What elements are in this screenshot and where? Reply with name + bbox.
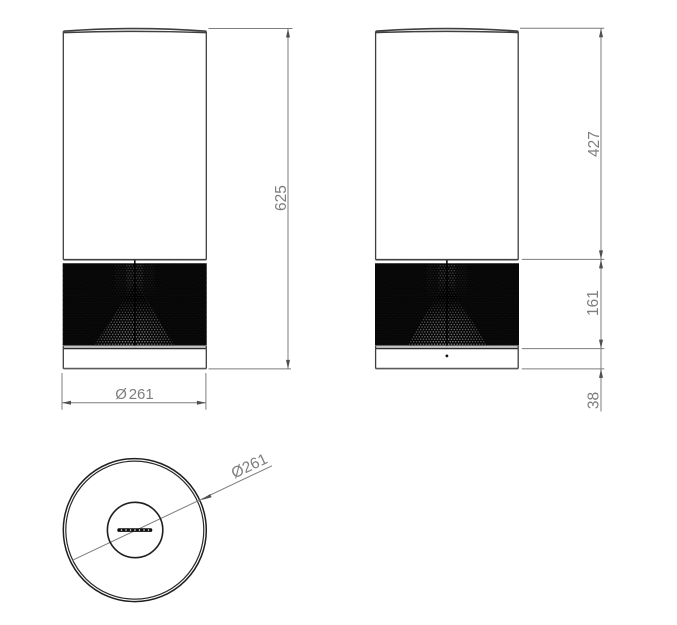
svg-text:Ø261: Ø261	[229, 451, 271, 483]
svg-text:Ø261: Ø261	[115, 386, 154, 403]
svg-text:161: 161	[585, 290, 602, 316]
svg-text:38: 38	[585, 392, 602, 409]
svg-text:625: 625	[273, 185, 290, 211]
svg-text:427: 427	[586, 131, 603, 157]
